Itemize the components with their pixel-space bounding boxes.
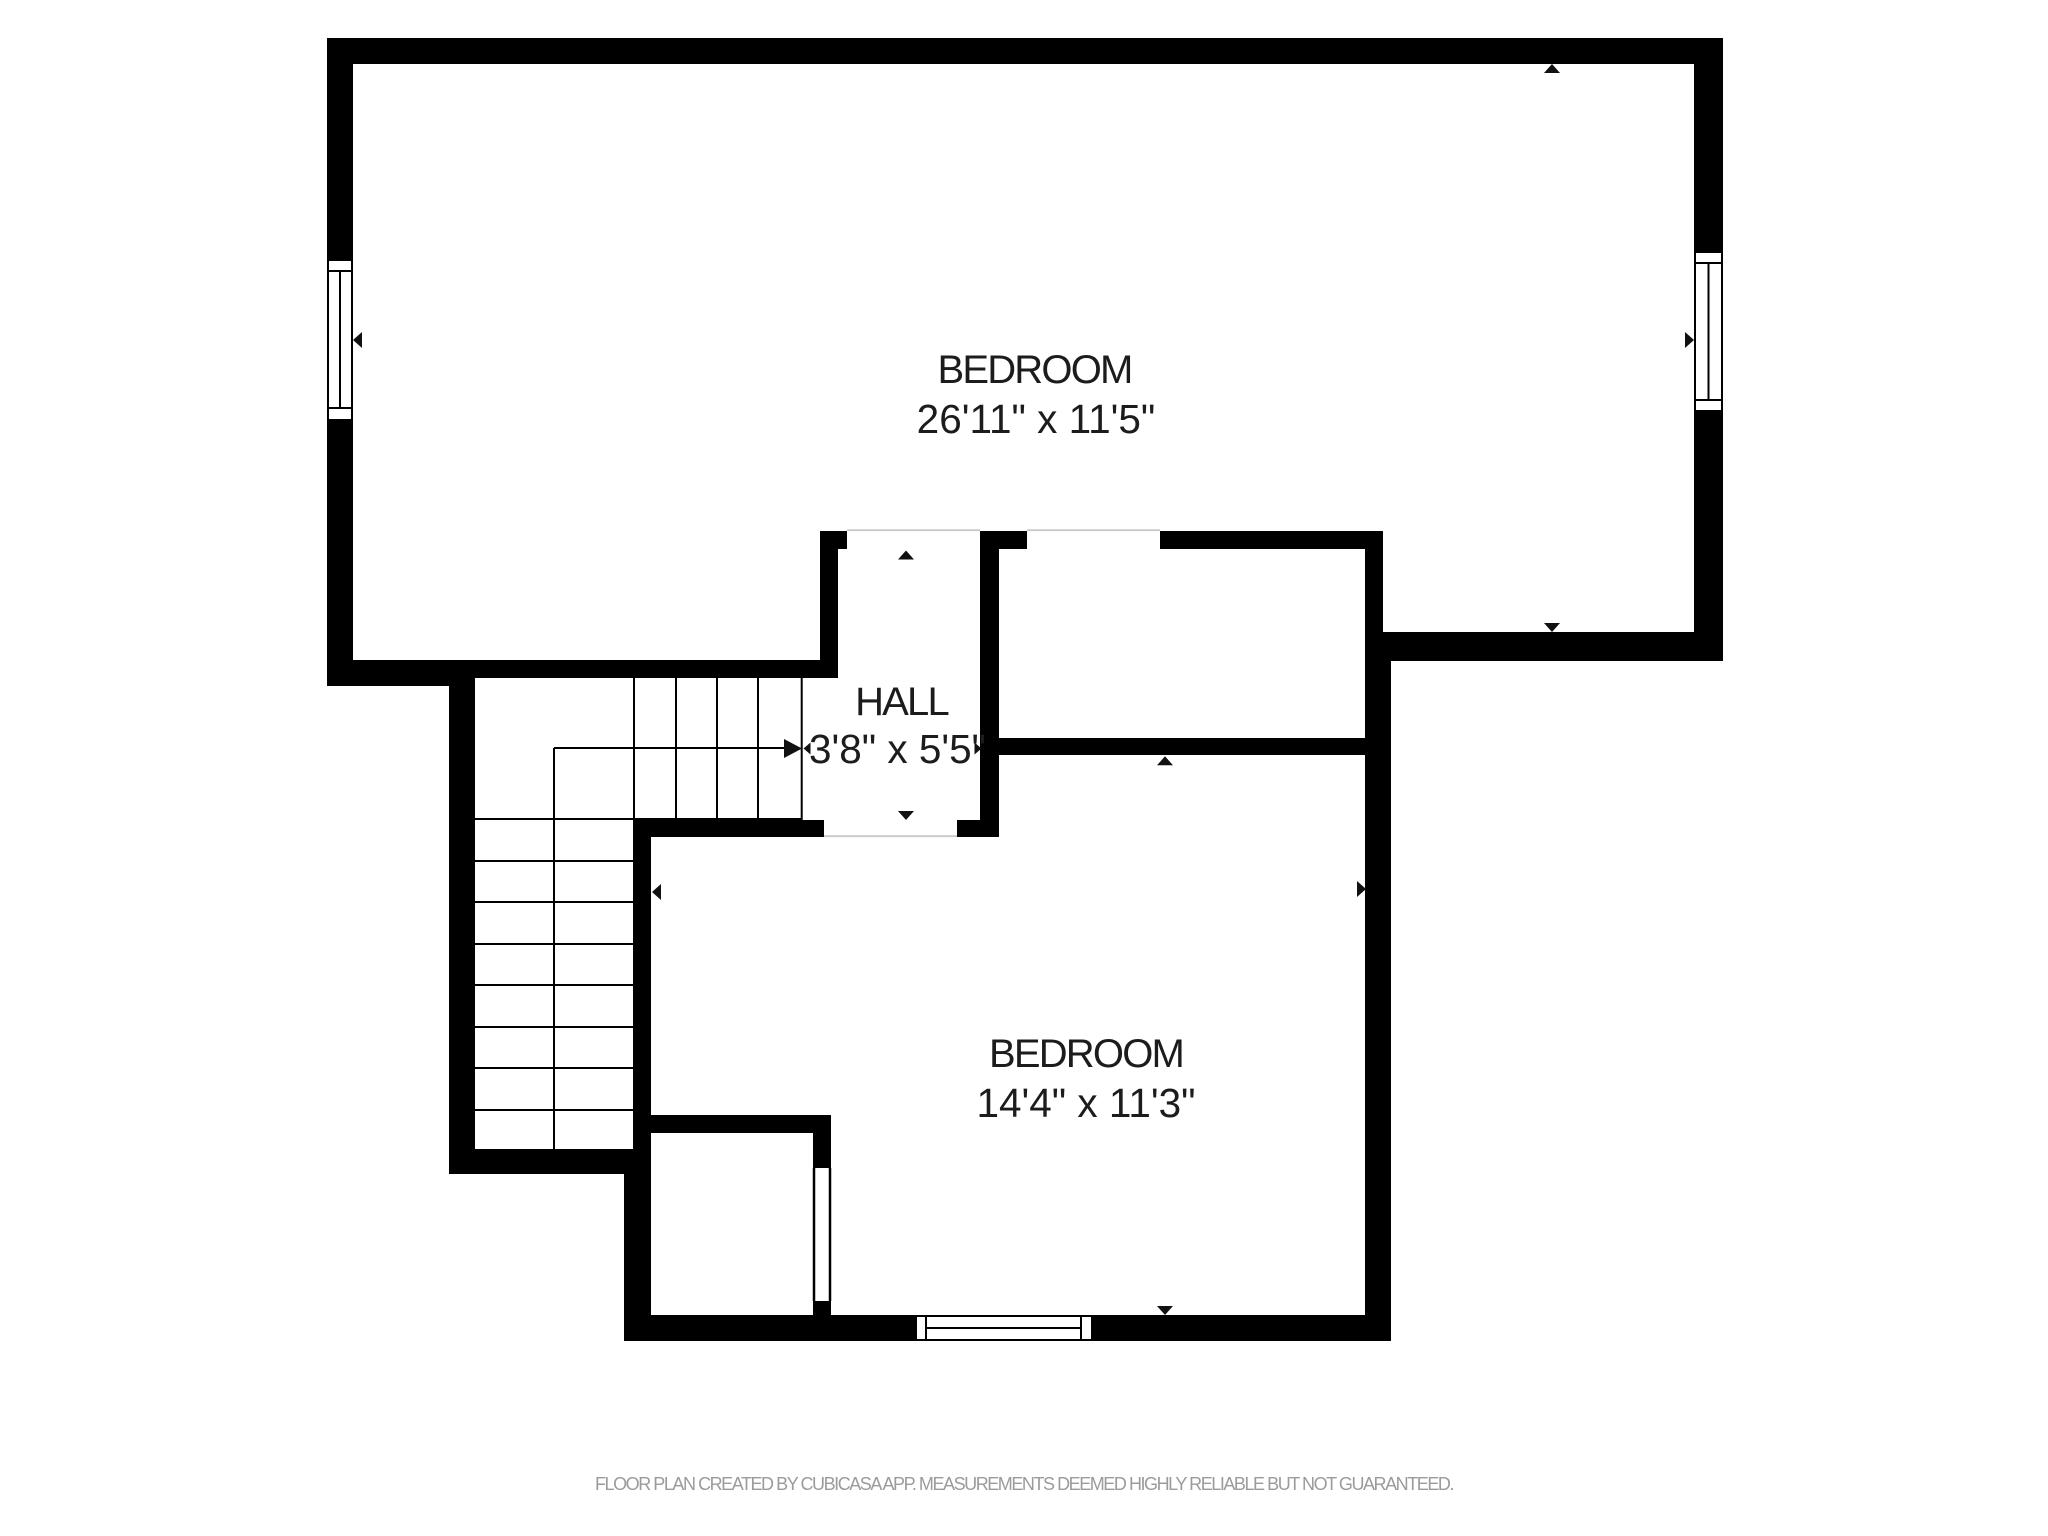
svg-text:BEDROOM: BEDROOM (937, 348, 1131, 392)
svg-text:HALL: HALL (855, 680, 948, 724)
svg-text:14'4" x 11'3": 14'4" x 11'3" (976, 1080, 1195, 1126)
svg-text:BEDROOM: BEDROOM (989, 1032, 1183, 1076)
svg-text:26'11" x 11'5": 26'11" x 11'5" (917, 396, 1156, 442)
svg-text:FLOOR PLAN CREATED BY CUBICASA: FLOOR PLAN CREATED BY CUBICASA APP. MEAS… (595, 1474, 1453, 1494)
svg-text:3'8" x 5'5": 3'8" x 5'5" (809, 726, 986, 772)
